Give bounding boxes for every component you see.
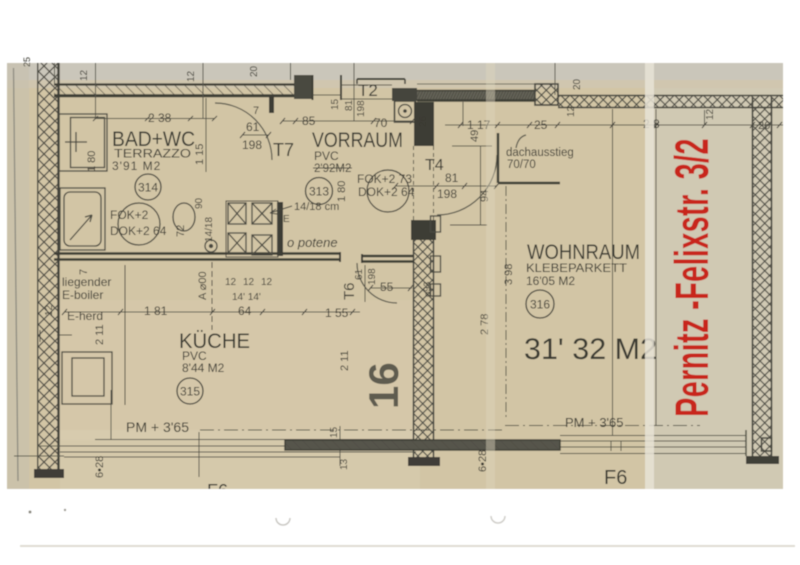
svg-text:12: 12 [186, 70, 197, 82]
svg-text:T4: T4 [425, 157, 444, 174]
svg-text:61: 61 [354, 268, 365, 280]
svg-text:14' 14': 14' 14' [232, 292, 261, 303]
svg-text:72: 72 [175, 225, 187, 237]
svg-text:⌀93: ⌀93 [422, 282, 432, 297]
svg-text:20: 20 [249, 65, 260, 77]
svg-text:o potene: o potene [287, 235, 338, 250]
svg-text:E-boiler: E-boiler [62, 288, 103, 302]
svg-text:13: 13 [339, 458, 350, 470]
svg-text:12: 12 [44, 304, 55, 316]
svg-text:F6: F6 [604, 467, 627, 489]
svg-text:198: 198 [437, 187, 457, 201]
svg-text:liegender: liegender [62, 275, 111, 289]
svg-text:3'91 M2: 3'91 M2 [112, 159, 161, 173]
svg-text:FOK+2: FOK+2 [110, 208, 149, 222]
svg-text:PM + 3'65: PM + 3'65 [565, 415, 624, 430]
svg-text:FOK+2 73: FOK+2 73 [357, 172, 412, 186]
svg-text:81: 81 [445, 171, 459, 185]
svg-text:6•28: 6•28 [94, 456, 106, 478]
svg-text:313: 313 [309, 185, 329, 199]
svg-text:1 80: 1 80 [86, 151, 98, 172]
svg-text:1 80: 1 80 [336, 181, 348, 202]
svg-text:70: 70 [374, 116, 388, 130]
svg-text:315: 315 [180, 385, 200, 399]
svg-text:70/70: 70/70 [507, 159, 536, 171]
svg-text:20: 20 [572, 78, 583, 90]
svg-text:16'05 M2: 16'05 M2 [526, 274, 575, 288]
svg-text:T2: T2 [358, 81, 378, 100]
svg-text:12: 12 [261, 277, 273, 288]
svg-text:26: 26 [758, 120, 770, 132]
svg-text:2'92M2: 2'92M2 [314, 163, 351, 175]
svg-text:1 15: 1 15 [194, 144, 206, 165]
svg-text:E: E [283, 214, 290, 225]
svg-text:12: 12 [79, 69, 90, 81]
svg-text:DOK+2 64: DOK+2 64 [110, 224, 167, 238]
svg-text:15: 15 [330, 98, 341, 110]
svg-text:26: 26 [418, 115, 429, 127]
svg-text:A ⌀00: A ⌀00 [197, 271, 209, 300]
svg-text:12: 12 [225, 277, 237, 288]
svg-text:dachausstieg: dachausstieg [506, 147, 574, 159]
svg-text:T6: T6 [341, 282, 358, 300]
svg-text:49: 49 [469, 130, 481, 142]
svg-text:15: 15 [329, 426, 340, 438]
svg-text:90: 90 [194, 197, 205, 209]
svg-text:25: 25 [534, 118, 548, 132]
svg-text:3 98: 3 98 [503, 264, 515, 285]
svg-text:2 11: 2 11 [94, 324, 106, 345]
svg-text:7: 7 [78, 269, 90, 275]
svg-text:2 11: 2 11 [339, 350, 351, 371]
svg-text:55: 55 [380, 280, 394, 294]
svg-text:DOK+2 64: DOK+2 64 [358, 185, 415, 199]
svg-text:61: 61 [246, 120, 260, 134]
svg-text:1 55: 1 55 [325, 306, 349, 320]
svg-text:Pernitz -Felixstr. 3/2: Pernitz -Felixstr. 3/2 [667, 138, 719, 417]
svg-text:25: 25 [22, 57, 32, 67]
svg-text:314: 314 [138, 181, 158, 195]
svg-text:1 81: 1 81 [144, 304, 168, 318]
svg-text:PVC: PVC [314, 149, 339, 163]
svg-text:31' 32 M2: 31' 32 M2 [524, 333, 657, 366]
svg-text:198: 198 [242, 138, 262, 152]
svg-text:E-herd: E-herd [67, 309, 103, 323]
svg-text:14/18 cm: 14/18 cm [294, 201, 339, 213]
svg-text:12: 12 [243, 277, 255, 288]
svg-text:7: 7 [253, 105, 259, 117]
svg-text:85: 85 [302, 114, 316, 128]
svg-text:64: 64 [238, 304, 252, 318]
svg-text:KLEBEPARKETT: KLEBEPARKETT [526, 261, 628, 275]
svg-text:12: 12 [566, 105, 577, 117]
svg-text:198: 198 [367, 268, 378, 285]
svg-text:14/18: 14/18 [204, 217, 215, 242]
svg-text:T7: T7 [273, 140, 294, 160]
svg-text:2 38: 2 38 [148, 111, 172, 125]
svg-text:81: 81 [344, 99, 355, 111]
svg-text:16: 16 [360, 362, 407, 409]
svg-text:316: 316 [530, 298, 550, 312]
svg-text:198: 198 [356, 100, 367, 117]
svg-text:8'44 M2: 8'44 M2 [182, 361, 225, 375]
svg-text:12: 12 [705, 108, 716, 120]
svg-text:PM + 3'65: PM + 3'65 [126, 419, 189, 435]
